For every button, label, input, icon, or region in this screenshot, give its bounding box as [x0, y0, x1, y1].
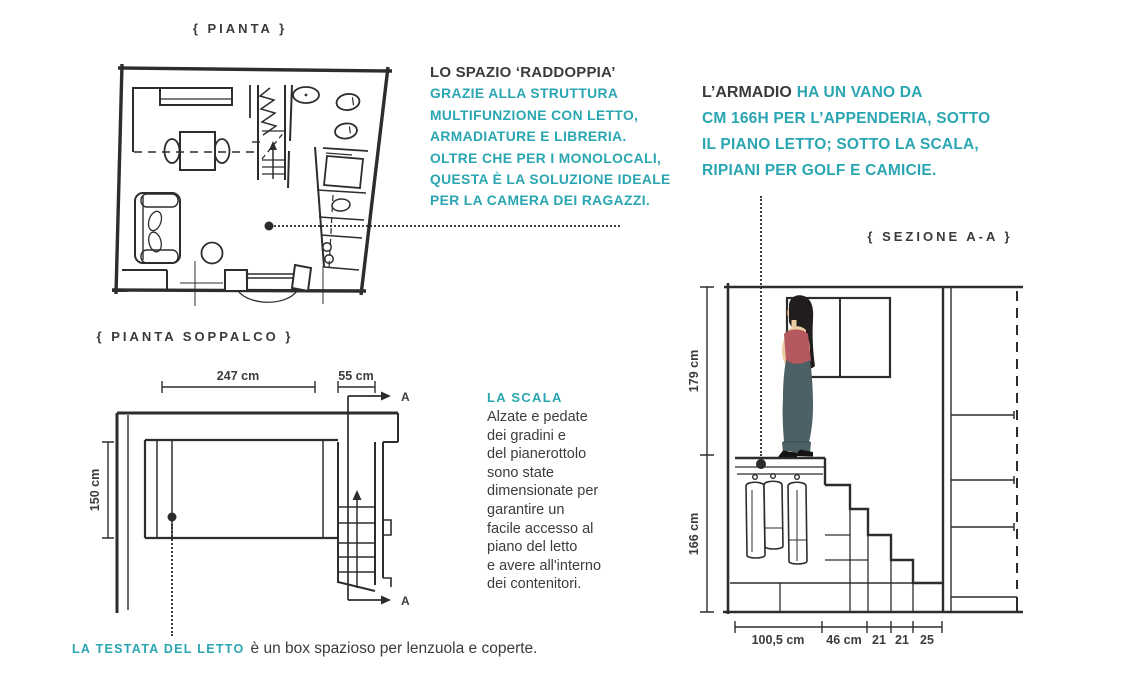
plan-table-chairs	[134, 132, 260, 170]
dim-label: 21	[872, 633, 886, 647]
plan-kitchen	[315, 147, 366, 270]
annotation-line: garantire un	[487, 501, 601, 520]
section-title: { SEZIONE A-A }	[840, 229, 1040, 244]
dim-label: 46 cm	[826, 633, 861, 647]
annotation-line: ARMADIATURE E LIBRERIA.	[430, 126, 671, 147]
dim-label: 100,5 cm	[752, 633, 805, 647]
annotation-line: facile accesso al	[487, 520, 601, 539]
section-dim-left: 179 cm 166 cm	[687, 287, 714, 612]
dim-label: 25	[920, 633, 934, 647]
callout-dot	[756, 459, 766, 469]
woman-top	[784, 330, 811, 365]
section-cut-arrow-icon	[381, 392, 391, 401]
caption-testata: LA TESTATA DEL LETTOè un box spazioso pe…	[72, 640, 537, 658]
dim-label: 55 cm	[338, 369, 373, 383]
callout-dot	[168, 513, 177, 522]
annotation-line: CM 166H PER L’APPENDERIA, SOTTO	[702, 106, 990, 132]
section-walls	[723, 283, 1023, 614]
loft-stair-arrow-icon	[353, 490, 362, 500]
plan-sofa	[135, 193, 180, 263]
section-dim-bottom: 100,5 cm 46 cm 21 21 25	[735, 621, 942, 647]
loft-dim-depth: 150 cm	[88, 442, 114, 538]
annotation-line: sono state	[487, 464, 601, 483]
section-marker-label: A	[401, 390, 410, 404]
annotation-line: dimensionate per	[487, 482, 601, 501]
plan-shower	[324, 156, 363, 188]
caption-testata-label: LA TESTATA DEL LETTO	[72, 642, 245, 656]
annotation-spazio: LO SPAZIO ‘RADDOPPIA’ GRAZIE ALLA STRUTT…	[430, 62, 671, 212]
section-cut-arrow-icon	[381, 596, 391, 605]
loft-dim-width: 247 cm	[162, 369, 315, 393]
annotation-armadio-line1: L’ARMADIOHA UN VANO DA	[702, 80, 990, 106]
annotation-line: dei contenitori.	[487, 575, 601, 594]
floor-plan-drawing	[100, 55, 410, 310]
loft-walls	[117, 413, 398, 613]
callout-dot	[265, 222, 274, 231]
loft-plan-title: { PIANTA SOPPALCO }	[90, 329, 300, 344]
garment-bag	[764, 481, 783, 549]
woman-pants	[783, 360, 813, 442]
plan-wc	[335, 92, 360, 111]
annotation-line: PER LA CAMERA DEI RAGAZZI.	[430, 190, 671, 211]
hanger-hook-icon	[753, 475, 758, 480]
annotation-line: dei gradini e	[487, 427, 601, 446]
annotation-scala-label: LA SCALA	[487, 390, 601, 405]
annotation-scala: LA SCALA Alzate e pedate dei gradini e d…	[487, 390, 601, 594]
plan-pouf	[202, 243, 223, 264]
magazine-illustration-page: { PIANTA } { PIANTA SOPPALCO } { SEZIONE…	[0, 0, 1140, 680]
plan-bidet	[334, 122, 358, 140]
annotation-scala-body: Alzate e pedate dei gradini e del pianer…	[487, 408, 601, 594]
annotation-line: piano del letto	[487, 538, 601, 557]
plan-title: { PIANTA }	[130, 21, 350, 36]
hanger-hook-icon	[795, 475, 800, 480]
plan-entry-doors	[122, 261, 323, 306]
dim-label: 166 cm	[687, 513, 701, 555]
woman-illustration	[778, 295, 815, 457]
hanger-hook-icon	[771, 474, 776, 479]
loft-right-wall	[383, 442, 391, 587]
annotation-line: QUESTA È LA SOLUZIONE IDEALE	[430, 169, 671, 190]
wardrobe-shelves	[951, 415, 1014, 527]
loft-dim-stair: 55 cm	[338, 369, 375, 393]
annotation-line: MULTIFUNZIONE CON LETTO,	[430, 105, 671, 126]
plan-stair	[250, 85, 285, 180]
annotation-line: Alzate e pedate	[487, 408, 601, 427]
section-drawing: 179 cm 166 cm	[685, 278, 1035, 653]
loft-plan-drawing: 247 cm 55 cm A A	[85, 360, 485, 625]
section-right-wardrobe	[951, 291, 1017, 612]
garment-bag	[746, 482, 765, 558]
loft-stair	[338, 442, 375, 591]
loft-bed-platform	[145, 440, 338, 538]
caption-testata-text: è un box spazioso per lenzuola e coperte…	[251, 640, 538, 657]
plan-bathroom	[288, 85, 368, 188]
annotation-line: e avere all'interno	[487, 557, 601, 576]
annotation-line: RIPIANI PER GOLF E CAMICIE.	[702, 158, 990, 184]
annotation-spazio-lead: LO SPAZIO ‘RADDOPPIA’	[430, 62, 671, 83]
annotation-armadio-lead: L’ARMADIO	[702, 84, 792, 101]
plan-appliance	[331, 198, 350, 212]
section-hanging-clothes	[746, 474, 807, 564]
annotation-line: GRAZIE ALLA STRUTTURA	[430, 83, 671, 104]
section-loft-platform	[735, 458, 825, 485]
annotation-armadio: L’ARMADIOHA UN VANO DA CM 166H PER L’APP…	[702, 80, 990, 184]
annotation-line: IL PIANO LETTO; SOTTO LA SCALA,	[702, 132, 990, 158]
annotation-armadio-rest: HA UN VANO DA	[797, 84, 923, 101]
annotation-line: del pianerottolo	[487, 445, 601, 464]
annotation-line: OLTRE CHE PER I MONOLOCALI,	[430, 148, 671, 169]
dim-label: 150 cm	[88, 469, 102, 511]
dim-label: 179 cm	[687, 350, 701, 392]
dim-label: 247 cm	[217, 369, 259, 383]
section-marker-label: A	[401, 594, 410, 608]
dim-label: 21	[895, 633, 909, 647]
